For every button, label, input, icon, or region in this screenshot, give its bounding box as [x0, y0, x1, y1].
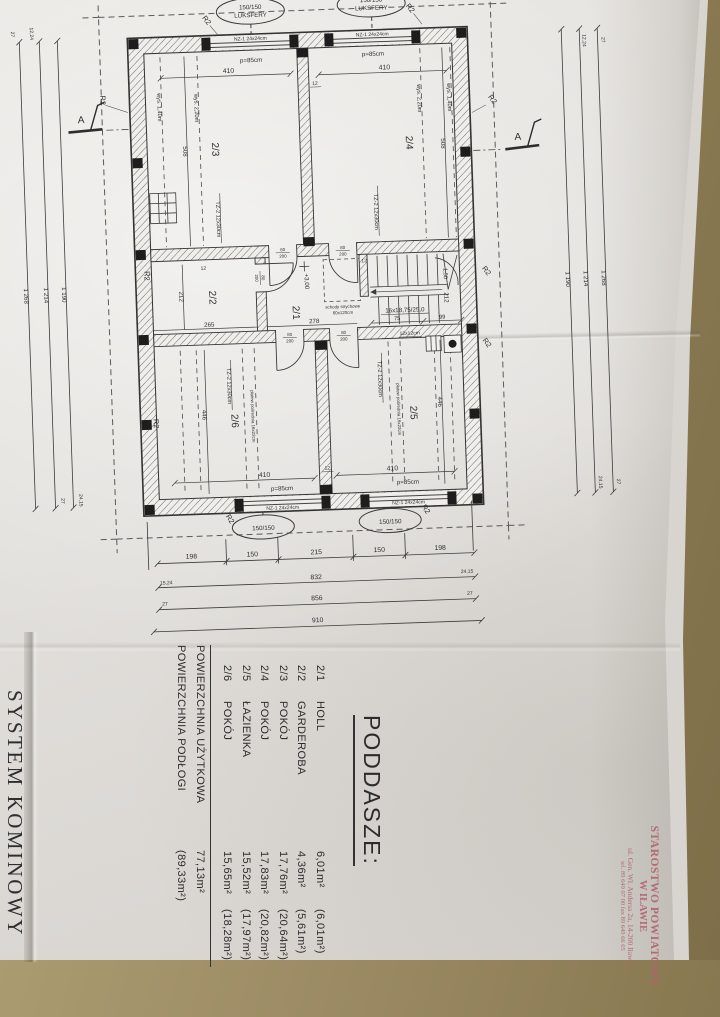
- stamp-line: W IŁAWIE: [637, 795, 648, 1017]
- dim-212: 212: [442, 292, 449, 303]
- room-number: 2/3: [277, 665, 289, 701]
- end-dim: 15,24: [160, 580, 173, 586]
- wall-dim-12: 12: [324, 466, 330, 472]
- stamp-line: ul. Gen. Wł. Andersa 2a, 14-200 Iława: [626, 795, 635, 1017]
- wall-dim-12: 12: [200, 266, 206, 272]
- photo-of-floor-plan: { "side_page": { "heading": "SYSTEM KOMI…: [0, 0, 720, 960]
- lintel-label: NZ-1 24x24cm: [234, 36, 267, 43]
- lintel-label: NZ-1 24x24cm: [356, 31, 389, 38]
- side-end-dim: 27: [59, 498, 65, 504]
- room-legend: PODDASZE: 2/1HOLL6,01m²(6,01m²) 2/2GARDE…: [183, 645, 385, 967]
- glass-block-size: 150/150: [239, 4, 262, 12]
- height-label: wys. 1,40m: [155, 92, 162, 122]
- total-dim: 910: [312, 617, 324, 624]
- side-end-dim: 12,24: [580, 34, 586, 47]
- svg-text:80: 80: [280, 247, 286, 252]
- office-stamp: STAROSTWO POWIATOWE W IŁAWIE ul. Gen. Wł…: [594, 795, 660, 1017]
- room-number: 2/5: [240, 665, 252, 701]
- svg-text:200: 200: [279, 253, 287, 258]
- room-floor-area: (6,01m²): [314, 909, 326, 954]
- room-number: 2/2: [296, 665, 308, 701]
- dim-446: 446: [436, 396, 443, 407]
- room-floor-area: (5,61m²): [296, 909, 308, 954]
- room-area: 17,83m²: [259, 851, 271, 909]
- room-area: 15,65m²: [222, 851, 234, 909]
- svg-text:R2: R2: [404, 2, 417, 15]
- room-label-2-2: 2/2: [206, 290, 217, 305]
- side-dim-chain-left: [16, 38, 76, 512]
- height-label: wys. 2,20m: [192, 93, 199, 123]
- side-total-dim: 1 214: [582, 271, 590, 287]
- room-floor-area: (17,97m²): [240, 909, 252, 960]
- total-row: POWIERZCHNIA UŻYTKOWA77,13m²: [188, 645, 207, 967]
- glass-block-name: LUKSFERY: [234, 12, 267, 20]
- room-area: 17,76m²: [277, 851, 289, 909]
- room-label-2-4: 2/4: [403, 136, 414, 151]
- room-width-dim: 410: [259, 472, 271, 479]
- stamp-line: tel. 89 649 07 00 fax 89 649 66 05: [619, 795, 626, 1017]
- room-number: 2/6: [222, 665, 234, 701]
- dim-508: 508: [439, 138, 446, 149]
- staircase: [369, 253, 459, 325]
- side-end-dim: 27: [599, 37, 605, 43]
- room-width-dim: 410: [387, 465, 399, 472]
- svg-text:200: 200: [339, 251, 347, 256]
- floor-plan-drawing: NZ-1 24x24cm p=85cm NZ-1 24x24cm p=85cm …: [0, 0, 720, 660]
- end-dim: 27: [162, 601, 168, 607]
- lintel-label: NZ-1 24x24cm: [392, 499, 425, 506]
- total-value: 77,13m²: [194, 850, 206, 893]
- svg-text:A: A: [514, 132, 521, 143]
- lintel-label: NZ-1 24x24cm: [266, 505, 299, 512]
- svg-text:80: 80: [287, 332, 293, 337]
- room-name: POKÓJ: [277, 701, 289, 851]
- svg-text:R2: R2: [481, 336, 494, 349]
- level-marker: [299, 261, 309, 271]
- sill-height-label: p=85cm: [271, 485, 293, 493]
- chimney-flues: [426, 335, 462, 353]
- stamp-line: STAROSTWO POWIATOWE: [648, 795, 660, 1017]
- room-area: 6,01m²: [314, 851, 326, 909]
- height-label: wys. 1,40m: [445, 82, 452, 112]
- legend-rows: 2/1HOLL6,01m²(6,01m²) 2/2GARDEROBA4,36m²…: [215, 645, 326, 967]
- attic-stairs-label: schody strychowe: [325, 303, 361, 309]
- segment-dim: 150: [373, 547, 385, 554]
- beam-labels: TZ-2 12x30cm TZ-2 12x30cm TZ-2 12x30cm T…: [214, 186, 386, 411]
- side-end-dim: 12,24: [28, 27, 34, 40]
- section-marker-left: A: [67, 101, 128, 132]
- total-dim: 856: [311, 595, 323, 602]
- svg-text:200: 200: [254, 274, 259, 282]
- svg-text:80: 80: [261, 275, 266, 281]
- dim-278: 278: [309, 318, 320, 325]
- total-label: POWIERZCHNIA PODŁOGI: [176, 645, 188, 850]
- room-number: 2/4: [259, 665, 271, 701]
- room-name: ŁAZIENKA: [240, 701, 252, 851]
- side-end-dim: 27: [9, 32, 15, 38]
- bottom-dim-chains: [147, 500, 485, 635]
- end-dim: 27: [467, 591, 473, 597]
- room-name: POKÓJ: [259, 701, 271, 851]
- segment-dim: 198: [186, 553, 198, 560]
- sill-height-label: p=85cm: [397, 479, 419, 487]
- svg-text:R2: R2: [142, 271, 151, 281]
- sill-height-label: p=85cm: [240, 57, 262, 65]
- side-total-dim: 1 268: [600, 270, 608, 286]
- total-label: POWIERZCHNIA UŻYTKOWA: [194, 645, 206, 850]
- side-total-dim: 1 190: [60, 287, 68, 303]
- svg-text:R2: R2: [200, 14, 213, 27]
- stairs-level-label: 1,50: [441, 268, 447, 279]
- svg-text:R2: R2: [486, 93, 499, 106]
- total-value: (89,33m²): [176, 850, 188, 901]
- segment-dim: 150: [247, 551, 259, 558]
- svg-text:200: 200: [286, 338, 294, 343]
- total-row: POWIERZCHNIA PODŁOGI(89,33m²): [169, 645, 188, 967]
- attic-hatch-dashed: [323, 258, 360, 301]
- svg-text:R2: R2: [152, 419, 161, 429]
- chimney-grid: [150, 193, 177, 224]
- room-label-2-5: 2/5: [407, 406, 418, 421]
- room-floor-area: (20,82m²): [259, 909, 271, 960]
- room-area: 4,36m²: [296, 851, 308, 909]
- stairs-run-dim: 99: [439, 315, 445, 321]
- side-end-dim: 24,15: [597, 476, 603, 489]
- legend-row: 2/3POKÓJ17,76m²(20,64m²): [271, 645, 290, 967]
- svg-text:R2: R2: [480, 264, 493, 277]
- room-width-dim: 410: [223, 68, 235, 75]
- dim-212: 212: [177, 291, 184, 302]
- room-floor-area: (18,28m²): [222, 909, 234, 960]
- height-label: wys. 2,20m: [415, 83, 422, 113]
- legend-totals: POWIERZCHNIA UŻYTKOWA77,13m² POWIERZCHNI…: [169, 645, 211, 967]
- legend-row: 2/5ŁAZIENKA15,52m²(17,97m²): [234, 645, 253, 967]
- room-area: 15,52m²: [240, 851, 252, 909]
- side-total-dim: 1 190: [564, 271, 572, 287]
- room-name: HOLL: [314, 701, 326, 851]
- wall-dim-12: 12: [312, 81, 318, 87]
- svg-text:80: 80: [341, 330, 347, 335]
- side-total-dim: 1 214: [42, 288, 50, 304]
- segment-dim: 215: [311, 549, 323, 556]
- adjacent-page-heading: SYSTEM KOMINOWY: [0, 690, 27, 1000]
- glass-block-name: LUKSFERY: [355, 4, 388, 12]
- svg-text:A: A: [78, 115, 85, 126]
- wall-dim-12: 12: [361, 258, 367, 264]
- level-label: +3,00: [303, 273, 311, 289]
- side-end-dim: 27: [615, 479, 621, 485]
- glass-block-size: 150/150: [252, 525, 275, 533]
- dim-508: 508: [181, 146, 188, 157]
- end-dim: 24,15: [461, 569, 474, 575]
- room-label-2-6: 2/6: [228, 414, 239, 429]
- purlin-label: płatew pośrednia 16x22cm: [250, 390, 257, 443]
- svg-text:200: 200: [340, 336, 348, 341]
- legend-row: 2/1HOLL6,01m²(6,01m²): [308, 645, 327, 967]
- room-name: GARDEROBA: [296, 701, 308, 851]
- dim-265: 265: [204, 322, 215, 329]
- window-bottom-left: NZ-1 24x24cm p=85cm: [234, 484, 331, 513]
- glass-block-size: 150/150: [379, 518, 402, 526]
- purlin-label: płatew pośrednia 16x22cm: [395, 383, 402, 436]
- chimney-size-label: 12x12cm: [399, 330, 419, 337]
- segment-dim: 198: [434, 545, 446, 552]
- svg-text:80: 80: [340, 245, 346, 250]
- stairs-run-dim: 75: [394, 316, 400, 322]
- room-label-2-3: 2/3: [209, 142, 220, 157]
- room-name: POKÓJ: [222, 701, 234, 851]
- side-dim-chain-right: [558, 25, 616, 496]
- total-dim: 832: [310, 574, 322, 581]
- room-width-dim: 410: [379, 64, 391, 71]
- attic-stairs-label: 60x120cm: [333, 310, 354, 316]
- dim-446: 446: [200, 410, 207, 421]
- section-marker-right: A: [472, 119, 542, 150]
- room-floor-area: (20,64m²): [277, 909, 289, 960]
- legend-title: PODDASZE:: [353, 715, 385, 866]
- room-number: 2/1: [314, 665, 326, 701]
- sill-height-label: p=85cm: [362, 50, 384, 58]
- side-total-dim: 1 268: [22, 288, 30, 304]
- room-label-2-1: 2/1: [290, 306, 301, 321]
- legend-row: 2/2GARDEROBA4,36m²(5,61m²): [289, 645, 308, 967]
- legend-row: 2/6POKÓJ15,65m²(18,28m²): [215, 645, 234, 967]
- door-size-label: 80 200 80 200 80 200 80 200 80 200: [253, 245, 353, 345]
- legend-row: 2/4POKÓJ17,83m²(20,82m²): [252, 645, 271, 967]
- side-end-dim: 24,15: [77, 494, 83, 507]
